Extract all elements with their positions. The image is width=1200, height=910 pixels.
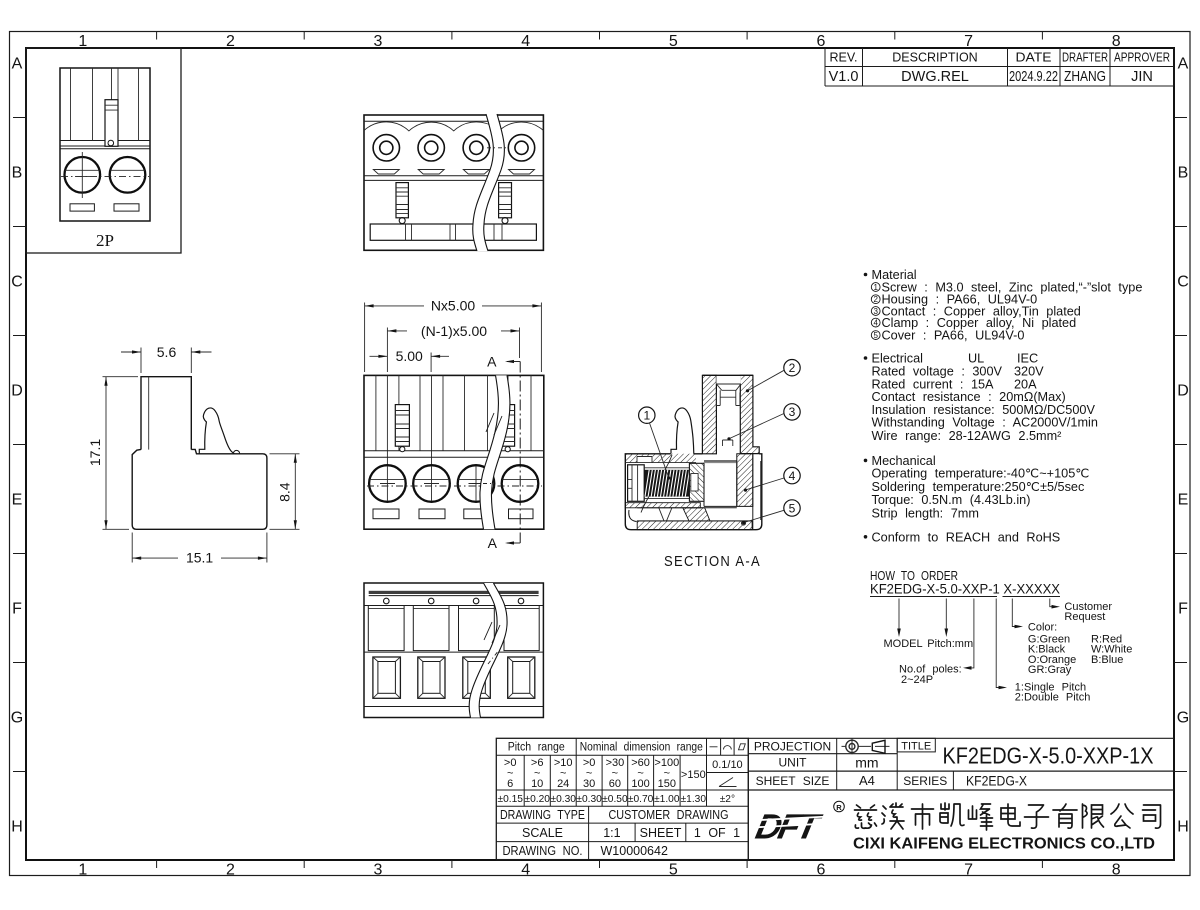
- svg-text:Wire range: 28-12AWG 2.5mm²: Wire range: 28-12AWG 2.5mm²: [872, 429, 1062, 443]
- svg-text:1 OF 1: 1 OF 1: [694, 826, 740, 840]
- svg-text:8: 8: [1112, 33, 1121, 50]
- svg-text:0.1/10: 0.1/10: [712, 759, 743, 771]
- svg-text:UL: UL: [968, 352, 984, 366]
- svg-text:±0.20: ±0.20: [524, 794, 550, 805]
- svg-text:5: 5: [873, 331, 878, 340]
- svg-text:5: 5: [669, 33, 678, 50]
- svg-text:DATE: DATE: [1016, 51, 1052, 65]
- svg-text:IEC: IEC: [1017, 352, 1038, 366]
- svg-text:KF2EDG-X-5.0-XXP-1X: KF2EDG-X-5.0-XXP-1X: [943, 743, 1154, 769]
- svg-text:±0.70: ±0.70: [628, 794, 654, 805]
- svg-text:G: G: [11, 710, 23, 727]
- svg-text:E: E: [1178, 492, 1189, 509]
- svg-text:24: 24: [557, 778, 569, 790]
- svg-text:Conform to REACH and RoHS: Conform to REACH and RoHS: [872, 530, 1061, 544]
- svg-text:KF2EDG-X: KF2EDG-X: [966, 773, 1027, 788]
- svg-text:±1.00: ±1.00: [654, 794, 680, 805]
- svg-text:±0.50: ±0.50: [602, 794, 628, 805]
- svg-text:E: E: [12, 492, 23, 509]
- svg-text:A: A: [12, 56, 23, 73]
- svg-text:2: 2: [226, 33, 235, 50]
- svg-text:6: 6: [507, 778, 513, 790]
- svg-text:SCALE: SCALE: [522, 826, 563, 840]
- svg-text:DRAFTER: DRAFTER: [1062, 51, 1108, 65]
- svg-text:UNIT: UNIT: [779, 756, 808, 770]
- svg-text:D: D: [11, 383, 23, 400]
- svg-text:8: 8: [1112, 862, 1121, 879]
- svg-text:DWG.REL: DWG.REL: [901, 69, 969, 85]
- svg-text:1: 1: [643, 409, 650, 423]
- svg-text:3: 3: [374, 862, 383, 879]
- svg-text:Pitch range: Pitch range: [508, 742, 565, 754]
- svg-text:±0.30: ±0.30: [550, 794, 576, 805]
- svg-text:F: F: [1178, 601, 1188, 618]
- svg-text:4: 4: [789, 469, 796, 483]
- svg-text:2~24P: 2~24P: [901, 674, 933, 686]
- svg-text:10: 10: [531, 778, 543, 790]
- svg-text:100: 100: [631, 778, 649, 790]
- svg-text:8.4: 8.4: [277, 482, 293, 502]
- svg-text:60: 60: [609, 778, 621, 790]
- svg-text:5: 5: [789, 501, 796, 515]
- svg-text:±0.15: ±0.15: [497, 794, 523, 805]
- svg-text:R: R: [836, 803, 842, 812]
- svg-text:6: 6: [816, 862, 825, 879]
- svg-text:Torque: 0.5N.m (4.43Lb.in): Torque: 0.5N.m (4.43Lb.in): [872, 493, 1031, 507]
- svg-text:W10000642: W10000642: [601, 844, 668, 858]
- svg-text:Color:: Color:: [1028, 622, 1057, 634]
- svg-text:Electrical: Electrical: [872, 352, 923, 366]
- svg-text:mm: mm: [855, 755, 878, 771]
- svg-text:Operating temperature:-40℃~+10: Operating temperature:-40℃~+105℃: [872, 467, 1090, 481]
- svg-text:6: 6: [816, 33, 825, 50]
- svg-text:SHEET: SHEET: [640, 826, 682, 840]
- svg-text:Cover : PA66, UL94V-0: Cover : PA66, UL94V-0: [882, 329, 1025, 343]
- svg-text:B:Blue: B:Blue: [1091, 654, 1123, 666]
- svg-text:GR:Gray: GR:Gray: [1028, 664, 1072, 676]
- svg-text:CUSTOMER DRAWING: CUSTOMER DRAWING: [609, 808, 729, 822]
- svg-text:ZHANG: ZHANG: [1064, 69, 1106, 85]
- svg-text:A: A: [487, 354, 497, 370]
- svg-text:G: G: [1177, 710, 1189, 727]
- svg-text:SHEET SIZE: SHEET SIZE: [756, 774, 830, 788]
- svg-text:Withstanding Voltage : AC2000V: Withstanding Voltage : AC2000V/1min: [872, 416, 1098, 430]
- svg-text:F: F: [12, 601, 22, 618]
- svg-text:Insulation resistance: 500MΩ/D: Insulation resistance: 500MΩ/DC500V: [872, 403, 1096, 417]
- svg-text:A: A: [488, 535, 498, 551]
- svg-text:A4: A4: [859, 773, 875, 788]
- svg-text:4: 4: [521, 862, 530, 879]
- svg-text:Nx5.00: Nx5.00: [431, 298, 476, 314]
- svg-text:4: 4: [873, 319, 878, 328]
- svg-text:±2°: ±2°: [720, 794, 735, 805]
- svg-text:C: C: [1177, 274, 1189, 291]
- svg-text:±1.30: ±1.30: [681, 794, 707, 805]
- svg-text:>150: >150: [681, 769, 706, 781]
- svg-text:Soldering temperature:250℃±5/5: Soldering temperature:250℃±5/5sec: [872, 480, 1085, 494]
- svg-text:5: 5: [669, 862, 678, 879]
- svg-text:B: B: [12, 165, 23, 182]
- svg-text:D: D: [1177, 383, 1189, 400]
- svg-text:DESCRIPTION: DESCRIPTION: [892, 51, 977, 65]
- svg-text:2024.9.22: 2024.9.22: [1009, 69, 1058, 85]
- svg-text:V1.0: V1.0: [829, 69, 859, 85]
- svg-text:Request: Request: [1064, 611, 1105, 623]
- svg-text:5.6: 5.6: [157, 344, 177, 360]
- svg-text:B: B: [1178, 165, 1189, 182]
- svg-text:Nominal dimension range: Nominal dimension range: [580, 742, 703, 754]
- svg-text:JIN: JIN: [1131, 69, 1153, 85]
- svg-text:TITLE: TITLE: [901, 740, 931, 752]
- svg-text:2P: 2P: [96, 231, 114, 250]
- svg-text:30: 30: [583, 778, 595, 790]
- svg-text:SECTION A-A: SECTION A-A: [664, 553, 761, 570]
- svg-text:H: H: [11, 819, 23, 836]
- svg-text:C: C: [11, 274, 23, 291]
- svg-text:±0.30: ±0.30: [576, 794, 602, 805]
- svg-text:2:Double Pitch: 2:Double Pitch: [1015, 692, 1091, 704]
- svg-text:3: 3: [374, 33, 383, 50]
- svg-text:2: 2: [226, 862, 235, 879]
- svg-text:A: A: [1178, 56, 1189, 73]
- svg-text:3: 3: [873, 307, 878, 316]
- svg-text:SERIES: SERIES: [903, 774, 947, 788]
- svg-text:7: 7: [964, 33, 973, 50]
- svg-text:1:1: 1:1: [603, 826, 620, 840]
- svg-text:APPROVER: APPROVER: [1114, 51, 1170, 65]
- svg-text:150: 150: [658, 778, 676, 790]
- svg-text:Strip length: 7mm: Strip length: 7mm: [872, 506, 979, 520]
- svg-text:3: 3: [789, 405, 796, 419]
- svg-text:PROJECTION: PROJECTION: [754, 739, 831, 753]
- svg-text:DRAWING TYPE: DRAWING TYPE: [500, 808, 585, 822]
- svg-text:1: 1: [873, 283, 878, 292]
- svg-text:4: 4: [521, 33, 530, 50]
- svg-text:REV.: REV.: [829, 51, 857, 65]
- svg-text:Pitch:mm: Pitch:mm: [927, 638, 973, 650]
- svg-text:7: 7: [964, 862, 973, 879]
- svg-text:KF2EDG-X-5.0-XXP-1 X-XXXXX: KF2EDG-X-5.0-XXP-1 X-XXXXX: [870, 581, 1061, 597]
- svg-text:DRAWING NO.: DRAWING NO.: [503, 844, 583, 858]
- svg-text:15.1: 15.1: [186, 550, 213, 566]
- svg-text:H: H: [1177, 819, 1189, 836]
- svg-text:MODEL: MODEL: [884, 638, 923, 650]
- svg-text:17.1: 17.1: [87, 439, 103, 466]
- svg-text:2: 2: [873, 295, 878, 304]
- svg-text:Contact resistance : 20mΩ(Max): Contact resistance : 20mΩ(Max): [872, 390, 1066, 404]
- svg-text:1: 1: [78, 862, 87, 879]
- svg-text:(N-1)x5.00: (N-1)x5.00: [421, 323, 487, 339]
- svg-text:5.00: 5.00: [396, 348, 423, 364]
- svg-text:2: 2: [789, 361, 796, 375]
- svg-text:CIXI KAIFENG ELECTRONICS CO.,L: CIXI KAIFENG ELECTRONICS CO.,LTD: [853, 836, 1155, 853]
